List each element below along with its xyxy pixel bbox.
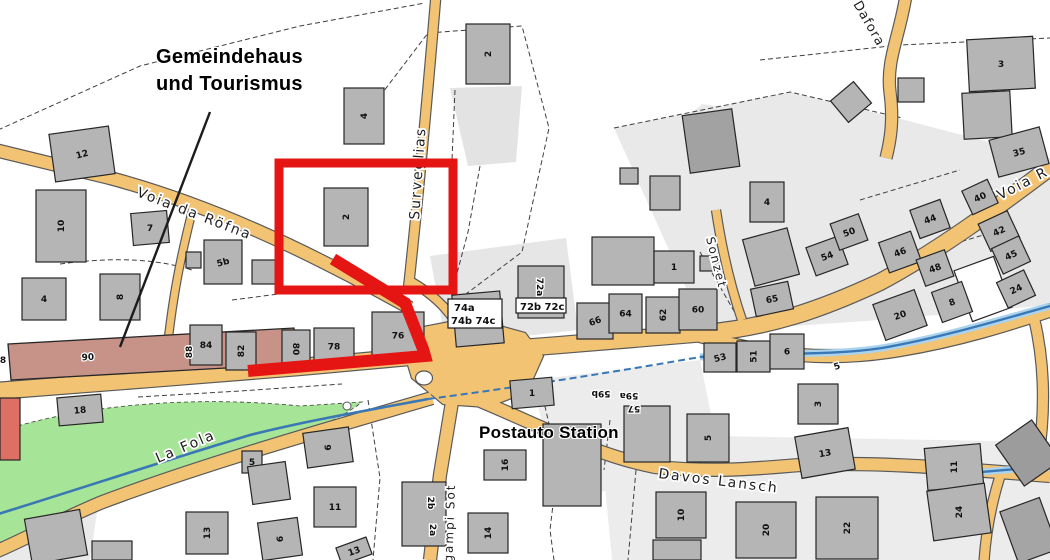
building-number: 59a — [620, 390, 639, 400]
building-number: 18 — [73, 406, 86, 417]
building-number: 62 — [659, 309, 669, 322]
building — [898, 78, 924, 102]
building-number: 60 — [692, 306, 705, 316]
annotation-gemeindehaus-line2: und Tourismus — [156, 71, 303, 98]
building-number: 2b — [425, 497, 435, 510]
building — [682, 109, 740, 173]
building-number: 8 — [0, 356, 6, 366]
traffic-island — [416, 371, 433, 385]
building — [248, 462, 291, 505]
house-number-label: 74b 74c — [451, 316, 495, 327]
building-number: 78 — [328, 343, 341, 353]
building-number: 64 — [619, 310, 632, 320]
building — [592, 237, 654, 285]
building — [624, 406, 670, 462]
building — [186, 252, 201, 268]
building — [24, 509, 87, 560]
house-number-label: 74a — [454, 303, 475, 314]
building-number: 6 — [276, 536, 286, 542]
building-number: 16 — [501, 459, 511, 472]
building-number: 11 — [950, 461, 960, 474]
building-number: 82 — [237, 345, 247, 358]
building-number: 76 — [392, 332, 405, 342]
building-number: 1 — [529, 389, 535, 399]
building-number: 3 — [814, 401, 824, 407]
annotation-gemeindehaus-line1: Gemeindehaus — [156, 44, 303, 71]
building-number: 3 — [998, 60, 1004, 70]
building-number: 2a — [427, 524, 437, 536]
building — [252, 260, 278, 284]
building-number: 80 — [290, 343, 300, 356]
building — [653, 540, 701, 560]
building-number: 24 — [955, 506, 965, 519]
building-number: 6 — [324, 444, 334, 450]
building-number: 1 — [671, 263, 677, 273]
building-number: 84 — [200, 341, 213, 351]
building-number: 20 — [762, 524, 772, 537]
building-number: 14 — [484, 527, 494, 540]
building-number: 51 — [750, 350, 760, 363]
building-number: 88 — [185, 346, 195, 359]
street-label-tgampi-sot: Tgampi Sot — [441, 483, 458, 560]
building — [0, 398, 20, 460]
building — [962, 91, 1012, 139]
building — [92, 541, 132, 560]
building-number: 13 — [203, 527, 213, 540]
building — [620, 168, 638, 184]
building-number: 90 — [81, 353, 94, 364]
annotation-postauto-station: Postauto Station — [479, 423, 619, 443]
building-number: 2 — [342, 214, 352, 220]
building-number: 4 — [360, 113, 370, 119]
annotation-gemeindehaus: Gemeindehaus und Tourismus — [156, 44, 303, 98]
building-number: 10 — [57, 220, 67, 233]
building-number: 4 — [41, 295, 47, 305]
building-number: 57 — [628, 403, 641, 413]
building-number: 59b — [591, 388, 611, 398]
building-number: 11 — [329, 503, 342, 513]
building-number: 2 — [484, 51, 494, 57]
building-number: 72a — [534, 278, 544, 297]
map-viewport: 121075b484228482807876166646260655351645… — [0, 0, 1050, 560]
building-number: 7 — [147, 224, 153, 234]
road-marker — [343, 402, 351, 410]
house-number-label: 72b 72c — [520, 302, 564, 313]
building — [402, 482, 446, 546]
building — [650, 176, 680, 210]
building-number: 4 — [764, 198, 770, 208]
building-number: 8 — [116, 294, 126, 300]
building-number: 13 — [818, 448, 832, 460]
building-number: 6 — [784, 348, 790, 358]
building-number: 22 — [843, 522, 853, 535]
building-number: 5 — [704, 435, 714, 441]
building-number: 10 — [677, 509, 687, 522]
